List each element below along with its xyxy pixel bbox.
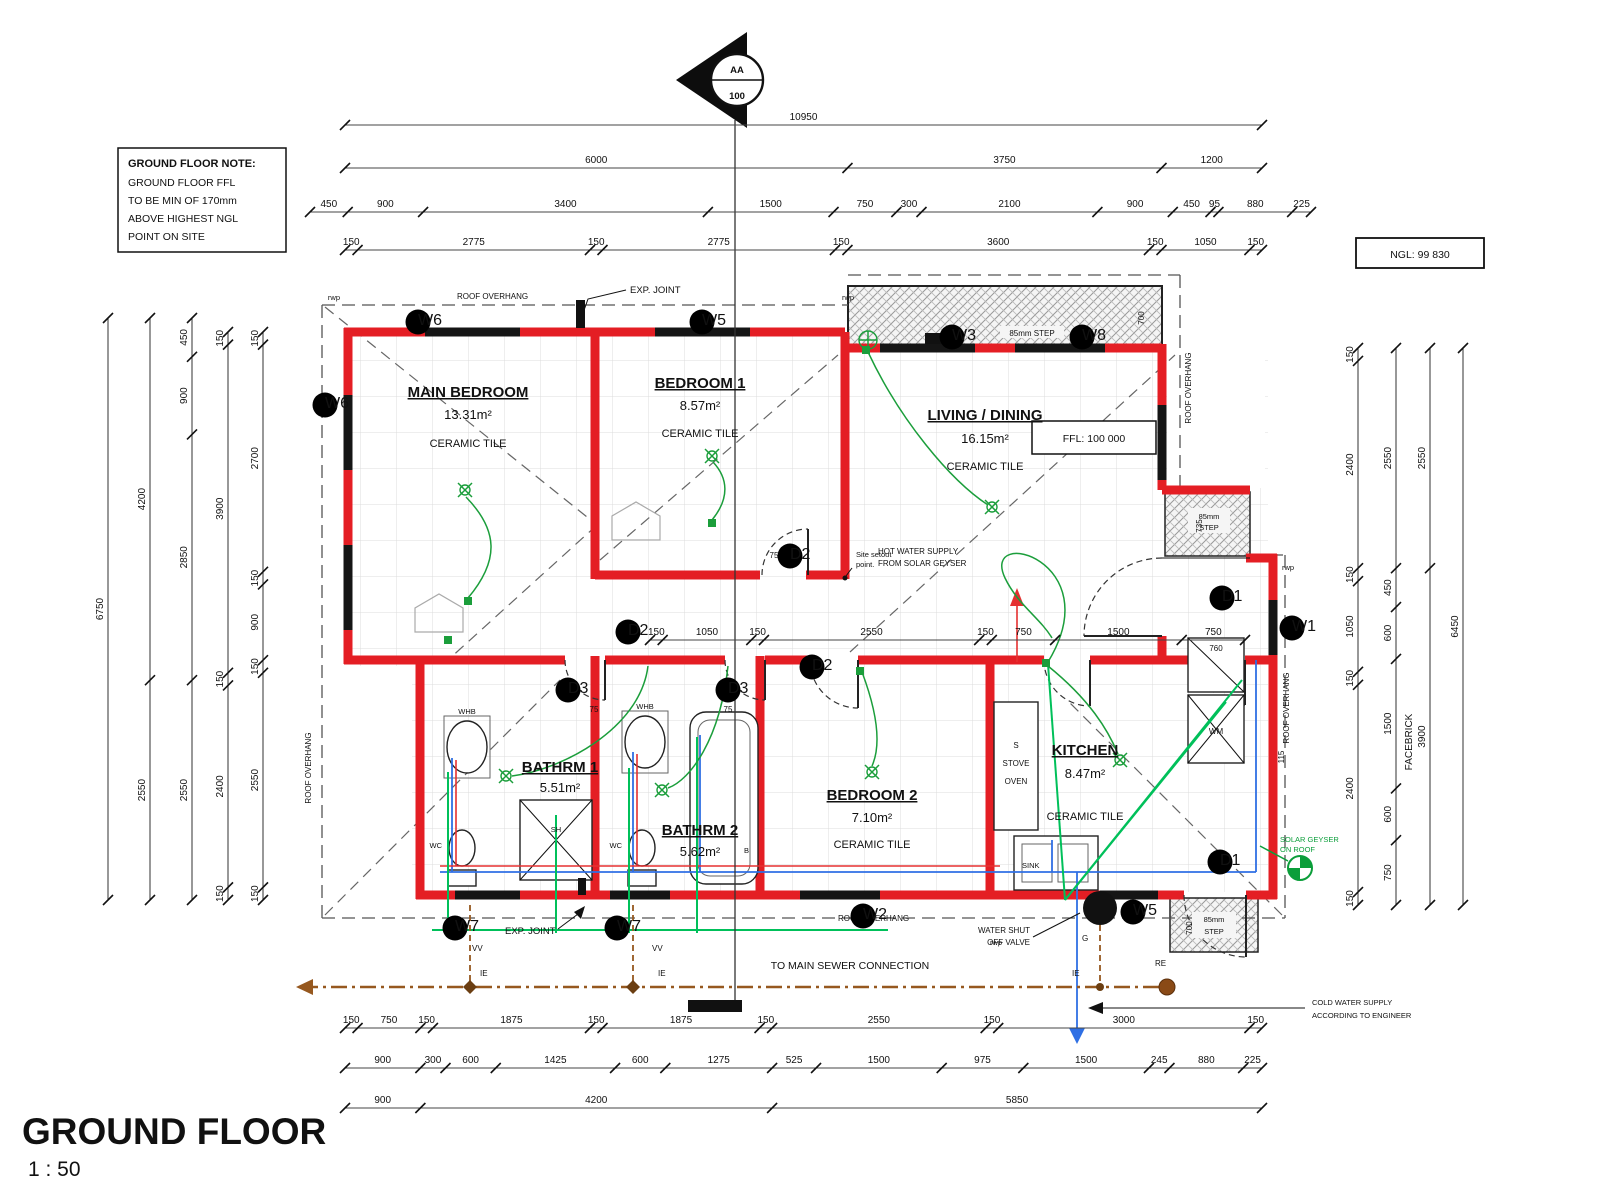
room-finish: CERAMIC TILE — [662, 428, 739, 440]
dim-value: 1425 — [544, 1055, 567, 1066]
dim-value: 750 — [1383, 864, 1394, 881]
floor-plan-sheet: AA 100 109506000375012004509003400150075… — [0, 0, 1600, 1191]
inspection-eye-2 — [626, 980, 640, 994]
rodding-eye — [1159, 979, 1175, 995]
dim-value: 150 — [1345, 346, 1356, 363]
jamb-dim: 75 — [590, 705, 599, 714]
ngl-value: NGL: 99 830 — [1390, 249, 1450, 261]
expansion-joint-marker-bottom — [578, 878, 586, 895]
dim-value: 3400 — [554, 199, 577, 210]
room-name: BEDROOM 1 — [655, 375, 746, 392]
dim-value: 150 — [588, 1015, 605, 1026]
ffl-value: FFL: 100 000 — [1063, 433, 1126, 445]
dim-value: 2550 — [1417, 447, 1428, 470]
tag-label: W3 — [952, 327, 976, 344]
vent-valve-label: VV — [472, 944, 483, 953]
patio-dim: 700 — [1137, 311, 1146, 325]
dim-value: 150 — [1345, 890, 1356, 907]
room-area: 16.15m² — [961, 431, 1009, 446]
dim-chain-right2: 25504506001500600750 — [1383, 343, 1401, 910]
dim-value: 150 — [215, 330, 226, 347]
dim-value: 1050 — [1194, 237, 1217, 248]
room-area: 8.57m² — [680, 398, 721, 413]
dim-value: 2400 — [1345, 453, 1356, 476]
note-title: GROUND FLOOR NOTE: — [128, 158, 256, 170]
dim-value: 450 — [321, 199, 338, 210]
dim-value: 150 — [749, 627, 766, 638]
dim-chain-left1: 6750 — [95, 313, 113, 905]
bath-label: B — [744, 846, 749, 855]
tag-label: D1 — [1220, 852, 1241, 869]
dim-chain-top2: 600037501200 — [340, 155, 1267, 173]
tag-label: D1 — [1222, 588, 1243, 605]
dim-value: 2550 — [179, 779, 190, 802]
setout-point — [843, 576, 848, 581]
dim-value: 600 — [1383, 806, 1394, 823]
wc-label: WC — [430, 841, 443, 850]
tag-label: W7 — [617, 918, 641, 935]
dim-value: 150 — [343, 1015, 360, 1026]
dim-value: 1875 — [500, 1015, 523, 1026]
dim-value: 150 — [588, 237, 605, 248]
step-label: 85mm — [1204, 915, 1225, 924]
cold-note-arrow — [1088, 1002, 1103, 1014]
note-line: ABOVE HIGHEST NGL — [128, 213, 238, 225]
expansion-joint-label: EXP. JOINT — [630, 285, 681, 296]
dim-value: 150 — [1247, 237, 1264, 248]
dim-chain-left5: 15027001509001502550150 — [250, 327, 268, 905]
dim-value: 750 — [381, 1015, 398, 1026]
shower-label: SH — [551, 825, 561, 834]
room-name: KITCHEN — [1052, 742, 1119, 759]
section-label-bottom: 100 — [729, 91, 745, 102]
rodding-eye-label: RE — [1155, 959, 1166, 968]
dim-value: 2550 — [250, 769, 261, 792]
dim-value: 150 — [250, 658, 261, 675]
cold-water-note: COLD WATER SUPPLY — [1312, 998, 1392, 1007]
gully — [1083, 891, 1117, 925]
dim-value: 2850 — [179, 546, 190, 569]
dim-value: 150 — [1345, 670, 1356, 687]
room-finish: CERAMIC TILE — [1047, 811, 1124, 823]
dim-value: 150 — [833, 237, 850, 248]
dim-value: 150 — [757, 1015, 774, 1026]
expansion-joint-marker-top — [576, 300, 585, 328]
sewer-arrow — [296, 979, 313, 995]
dim-value: 750 — [1205, 627, 1222, 638]
setout-note: Site setout — [856, 550, 892, 559]
dim-value: 1500 — [868, 1055, 891, 1066]
dim-value: 2400 — [1345, 777, 1356, 800]
roof-overhang-label: ROOF OVERHANG — [1184, 352, 1193, 423]
sewer-connection-label: TO MAIN SEWER CONNECTION — [771, 960, 929, 972]
dim-value: 150 — [648, 627, 665, 638]
dim-value: 600 — [462, 1055, 479, 1066]
stove-label: STOVE — [1003, 759, 1030, 768]
stove-label: S — [1013, 741, 1018, 750]
expansion-joint-label: EXP. JOINT — [505, 926, 556, 937]
dim-value: 300 — [901, 199, 918, 210]
dim-value: 880 — [1198, 1055, 1215, 1066]
dim-value: 900 — [377, 199, 394, 210]
tag-label: W5 — [702, 312, 726, 329]
dim-value: 150 — [215, 670, 226, 687]
dim-value: 10950 — [790, 112, 818, 123]
dim-value: 150 — [984, 1015, 1001, 1026]
dim-value: 2700 — [250, 447, 261, 470]
dim-value: 4200 — [585, 1095, 608, 1106]
tag-label: W1 — [1292, 618, 1316, 635]
solar-geyser-note: ON ROOF — [1280, 845, 1315, 854]
room-finish: CERAMIC TILE — [430, 438, 507, 450]
step-label: 85mm STEP — [1009, 329, 1054, 338]
dim-value: 150 — [343, 237, 360, 248]
dim-value: 1500 — [1383, 712, 1394, 735]
room-area: 5.62m² — [680, 844, 721, 859]
dim-chain-botA: 1507501501875150187515025501503000150 — [340, 1015, 1267, 1033]
facebrick-label: FACEBRICK — [1404, 713, 1415, 770]
dim-chain-left3: 45090028502550 — [179, 313, 197, 905]
jamb-dim: 75 — [724, 705, 733, 714]
note-line: GROUND FLOOR FFL — [128, 177, 235, 189]
roof-overhang-label: ROOF OVERHANG — [457, 292, 528, 301]
tag-label: W5 — [1133, 902, 1157, 919]
dim-value: 600 — [632, 1055, 649, 1066]
hot-water-note: FROM SOLAR GEYSER — [878, 559, 967, 568]
dim-value: 880 — [1247, 199, 1264, 210]
dim-chain-left2: 42002550 — [137, 313, 155, 905]
tag-label: W6 — [325, 395, 349, 412]
dim-value: 5850 — [1006, 1095, 1029, 1106]
tag-label: D3 — [728, 680, 749, 697]
dim-value: 900 — [1127, 199, 1144, 210]
inspection-eye-3 — [1096, 983, 1104, 991]
tag-label: D3 — [568, 680, 589, 697]
dim-value: 1050 — [696, 627, 719, 638]
room-name: LIVING / DINING — [927, 407, 1042, 424]
dim-value: 900 — [250, 614, 261, 631]
dim-value: 150 — [250, 569, 261, 586]
shutoff-valve-note: WATER SHUT — [978, 926, 1030, 935]
dim-value: 1050 — [1345, 615, 1356, 638]
dim-value: 600 — [1383, 624, 1394, 641]
dim-value: 6750 — [95, 597, 106, 620]
dim-value: 1500 — [1107, 627, 1130, 638]
inspection-eye-label: IE — [1072, 969, 1080, 978]
dim-value: 2550 — [868, 1015, 891, 1026]
dim-value: 150 — [1345, 566, 1356, 583]
room-name: BATHRM 1 — [522, 759, 598, 776]
basin-whb-2 — [625, 716, 665, 768]
room-finish: CERAMIC TILE — [834, 839, 911, 851]
inspection-eye-label: IE — [480, 969, 488, 978]
tag-label: W6 — [418, 312, 442, 329]
rwp-label: rwp — [1282, 563, 1294, 572]
dim-chain-top4: 1502775150277515036001501050150 — [340, 237, 1267, 255]
whb-label: WHB — [636, 702, 654, 711]
tag-label: D2 — [812, 657, 833, 674]
room-area: 5.51m² — [540, 780, 581, 795]
room-finish: CERAMIC TILE — [947, 461, 1024, 473]
room-name: MAIN BEDROOM — [408, 384, 529, 401]
section-label-top: AA — [730, 65, 744, 76]
dim-value: 3900 — [215, 497, 226, 520]
wall-dim: 115 — [1277, 750, 1286, 763]
dim-value: 975 — [974, 1055, 991, 1066]
inspection-eye-1 — [463, 980, 477, 994]
drawing-title: GROUND FLOOR 1 : 50 — [22, 1111, 326, 1181]
dim-value: 1875 — [670, 1015, 693, 1026]
inspection-eye-label: IE — [658, 969, 666, 978]
whb-label: WHB — [458, 707, 476, 716]
room-name: BATHRM 2 — [662, 822, 738, 839]
dim-value: 6000 — [585, 155, 608, 166]
dim-value: 1275 — [708, 1055, 731, 1066]
dim-chain-right3: 25503900 — [1417, 343, 1435, 910]
dim-value: 150 — [418, 1015, 435, 1026]
vent-valve-label: VV — [652, 944, 663, 953]
step-dim: 700 — [1185, 921, 1194, 935]
room-area: 8.47m² — [1065, 766, 1106, 781]
dim-chain-right1: 150240015010501502400150 — [1345, 343, 1363, 910]
page-title: GROUND FLOOR — [22, 1111, 326, 1152]
room-area: 7.10m² — [852, 810, 893, 825]
dim-value: 6450 — [1450, 615, 1461, 638]
roof-overhang-label: ROOF OVERHANG — [304, 732, 313, 803]
basin-whb-1 — [447, 721, 487, 773]
dim-value: 900 — [374, 1095, 391, 1106]
dim-value: 450 — [1183, 199, 1200, 210]
dim-value: 150 — [977, 627, 994, 638]
floor-plan-drawing: AA 100 109506000375012004509003400150075… — [0, 0, 1600, 1191]
dim-value: 2550 — [137, 779, 148, 802]
dim-chain-right4: 6450 — [1450, 343, 1468, 910]
wm-label: WM — [1209, 727, 1224, 736]
dim-value: 750 — [1015, 627, 1032, 638]
dim-value: 2550 — [860, 627, 883, 638]
roof-overhang-label: ROOF OVERHANG — [1282, 672, 1291, 743]
dim-value: 150 — [1147, 237, 1164, 248]
solar-geyser-note: SOLAR GEYSER — [1280, 835, 1339, 844]
rwp-label: rwp — [990, 938, 1002, 947]
tag-label: W8 — [1082, 327, 1106, 344]
room-name: BEDROOM 2 — [827, 787, 918, 804]
dim-chain-botB: 9003006001425600127552515009751500245880… — [340, 1055, 1267, 1073]
gully-label: G — [1082, 934, 1088, 943]
tag-label: D2 — [628, 622, 649, 639]
cold-water-note: ACCORDING TO ENGINEER — [1312, 1011, 1412, 1020]
dim-value: 900 — [374, 1055, 391, 1066]
dim-value: 3600 — [987, 237, 1010, 248]
tag-label: W2 — [863, 906, 887, 923]
dim-value: 750 — [857, 199, 874, 210]
dim-value: 3750 — [993, 155, 1016, 166]
dim-value: 1200 — [1201, 155, 1224, 166]
dim-value: 3000 — [1113, 1015, 1136, 1026]
dim-value: 150 — [250, 330, 261, 347]
dim-value: 1500 — [760, 199, 783, 210]
dim-value: 525 — [786, 1055, 803, 1066]
step-dim: 735 — [1195, 519, 1204, 533]
step-label: STEP — [1204, 927, 1224, 936]
cold-water-arrow — [1069, 1028, 1085, 1044]
wc-label: WC — [610, 841, 623, 850]
dim-value: 150 — [250, 885, 261, 902]
sink-label: SINK — [1022, 861, 1040, 870]
dim-chain-top3: 45090034001500750300210090045095880225 — [305, 199, 1316, 217]
patio-step-area — [848, 286, 1162, 348]
room-area: 13.31m² — [444, 407, 492, 422]
dim-value: 245 — [1151, 1055, 1168, 1066]
dim-value: 150 — [1247, 1015, 1264, 1026]
dim-value: 2775 — [708, 237, 731, 248]
dim-chain-botC: 90042005850 — [340, 1095, 1267, 1113]
dim-value: 2400 — [215, 775, 226, 798]
dim-value: 2100 — [998, 199, 1021, 210]
db-symbol — [859, 331, 877, 349]
stove-label: OVEN — [1005, 777, 1028, 786]
dim-value: 225 — [1244, 1055, 1261, 1066]
dim-value: 900 — [179, 387, 190, 404]
dim-value: 2550 — [1383, 447, 1394, 470]
dim-value: 95 — [1209, 199, 1221, 210]
entry-dim: 760 — [1209, 644, 1223, 653]
dim-value: 450 — [179, 329, 190, 346]
dim-value: 150 — [215, 885, 226, 902]
rwp-label: rwp — [328, 293, 340, 302]
dim-value: 225 — [1293, 199, 1310, 210]
dim-value: 1500 — [1075, 1055, 1098, 1066]
dim-value: 450 — [1383, 579, 1394, 596]
rwp-label: rwp — [842, 293, 854, 302]
setout-note: point. — [856, 560, 874, 569]
tag-label: D2 — [790, 546, 811, 563]
drawing-scale: 1 : 50 — [28, 1158, 81, 1181]
dim-chain-top1: 10950 — [340, 112, 1267, 130]
note-line: POINT ON SITE — [128, 231, 205, 243]
dim-chain-left4: 15039001502400150 — [215, 327, 233, 905]
dim-value: 2775 — [463, 237, 486, 248]
dim-value: 3900 — [1417, 725, 1428, 748]
tag-label: W7 — [455, 918, 479, 935]
dim-value: 300 — [425, 1055, 442, 1066]
dim-value: 4200 — [137, 488, 148, 511]
note-line: TO BE MIN OF 170mm — [128, 195, 237, 207]
